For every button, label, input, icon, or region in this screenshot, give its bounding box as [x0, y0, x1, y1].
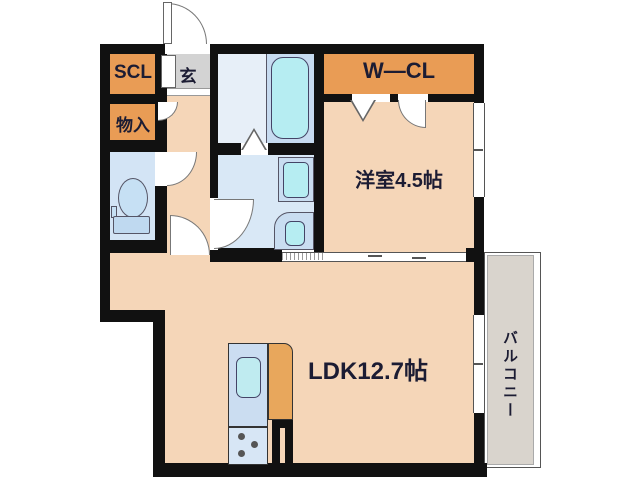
sliding-door-meeting-rail [474, 363, 483, 365]
entrance-label: 玄 [175, 62, 201, 87]
wall-toilet-bottom [100, 240, 167, 253]
toilet-tank-icon [113, 216, 150, 234]
wall-top-main [210, 44, 484, 54]
bathtub-icon [271, 57, 309, 139]
partition-track-hatch [282, 253, 326, 260]
entrance-step [167, 88, 210, 96]
wall-bottom [153, 463, 487, 477]
front-door-swing-arc [167, 3, 207, 44]
washing-machine-icon [283, 162, 309, 198]
entrance-cabinet [161, 55, 176, 88]
kitchen-wall-stub [272, 420, 293, 428]
kitchen-stove [228, 427, 268, 465]
balcony-sliding-door [473, 315, 485, 413]
shoe-closet-label: SCL [108, 62, 158, 84]
kitchen-wall-stub-leg [285, 428, 293, 466]
kitchen-wall-stub-leg [272, 428, 280, 466]
floorplan: SCL 玄 物入 W—CL 洋室4.5帖 LDK12.7帖 バルコニー [0, 0, 640, 480]
partition-tick-1 [368, 255, 382, 257]
wcl-folding-door-face [352, 100, 374, 119]
toilet-door-opening [155, 152, 167, 186]
room-partition-slider [282, 252, 466, 262]
wall-bath-right [314, 44, 324, 262]
wall-washroom-bottom [210, 248, 282, 262]
stove-burner-icon [238, 433, 245, 440]
washbasin-bowl-icon [285, 221, 305, 246]
walk-in-closet-label: W—CL [324, 58, 474, 84]
wall-left [100, 44, 110, 322]
stove-burner-icon [251, 441, 258, 448]
kitchen-worktop-orange [268, 343, 293, 420]
ldk-label: LDK12.7帖 [298, 351, 438, 386]
kitchen-sink-icon [236, 357, 261, 398]
outside-area [0, 322, 153, 480]
balcony-label: バルコニー [494, 295, 520, 455]
toilet-bowl-icon [118, 178, 148, 218]
wall-left-lower [153, 310, 165, 477]
western-room-label: 洋室4.5帖 [324, 164, 474, 193]
front-door-leaf [163, 2, 172, 44]
partition-end-stub [466, 248, 474, 262]
storage-label: 物入 [106, 111, 160, 136]
partition-tick-2 [412, 257, 426, 259]
western-room-window [473, 103, 485, 197]
wall-scl-divider [110, 94, 155, 104]
stove-burner-icon [238, 450, 245, 457]
front-door-opening [165, 44, 210, 54]
wall-storage-divider [110, 140, 155, 152]
bath-folding-door-face [243, 131, 265, 150]
window-sash-line [474, 149, 483, 151]
